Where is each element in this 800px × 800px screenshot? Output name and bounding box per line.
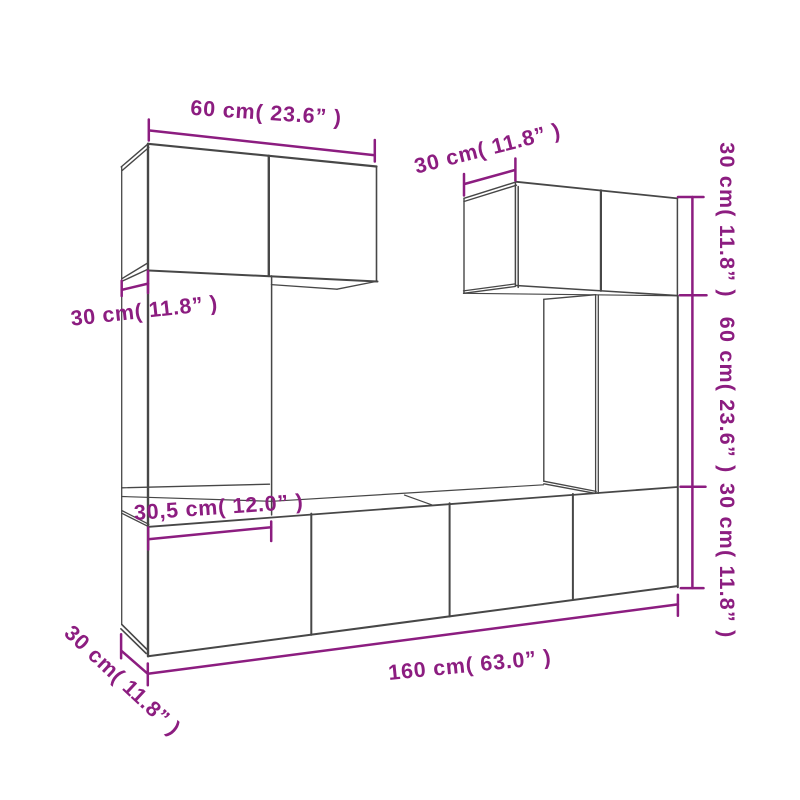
svg-text:60 cm( 23.6” ): 60 cm( 23.6” ) [190, 96, 343, 130]
svg-text:160 cm( 63.0” ): 160 cm( 63.0” ) [387, 645, 552, 685]
svg-text:30 cm( 11.8” ): 30 cm( 11.8” ) [412, 118, 563, 178]
svg-text:30,5 cm( 12.0” ): 30,5 cm( 12.0” ) [133, 489, 304, 524]
svg-text:30 cm( 11.8” ): 30 cm( 11.8” ) [60, 621, 186, 741]
svg-text:60 cm( 23.6” ): 60 cm( 23.6” ) [715, 317, 739, 474]
svg-text:30 cm( 11.8” ): 30 cm( 11.8” ) [715, 483, 739, 638]
svg-text:30 cm( 11.8” ): 30 cm( 11.8” ) [715, 142, 739, 297]
svg-text:30 cm( 11.8” ): 30 cm( 11.8” ) [69, 291, 218, 331]
